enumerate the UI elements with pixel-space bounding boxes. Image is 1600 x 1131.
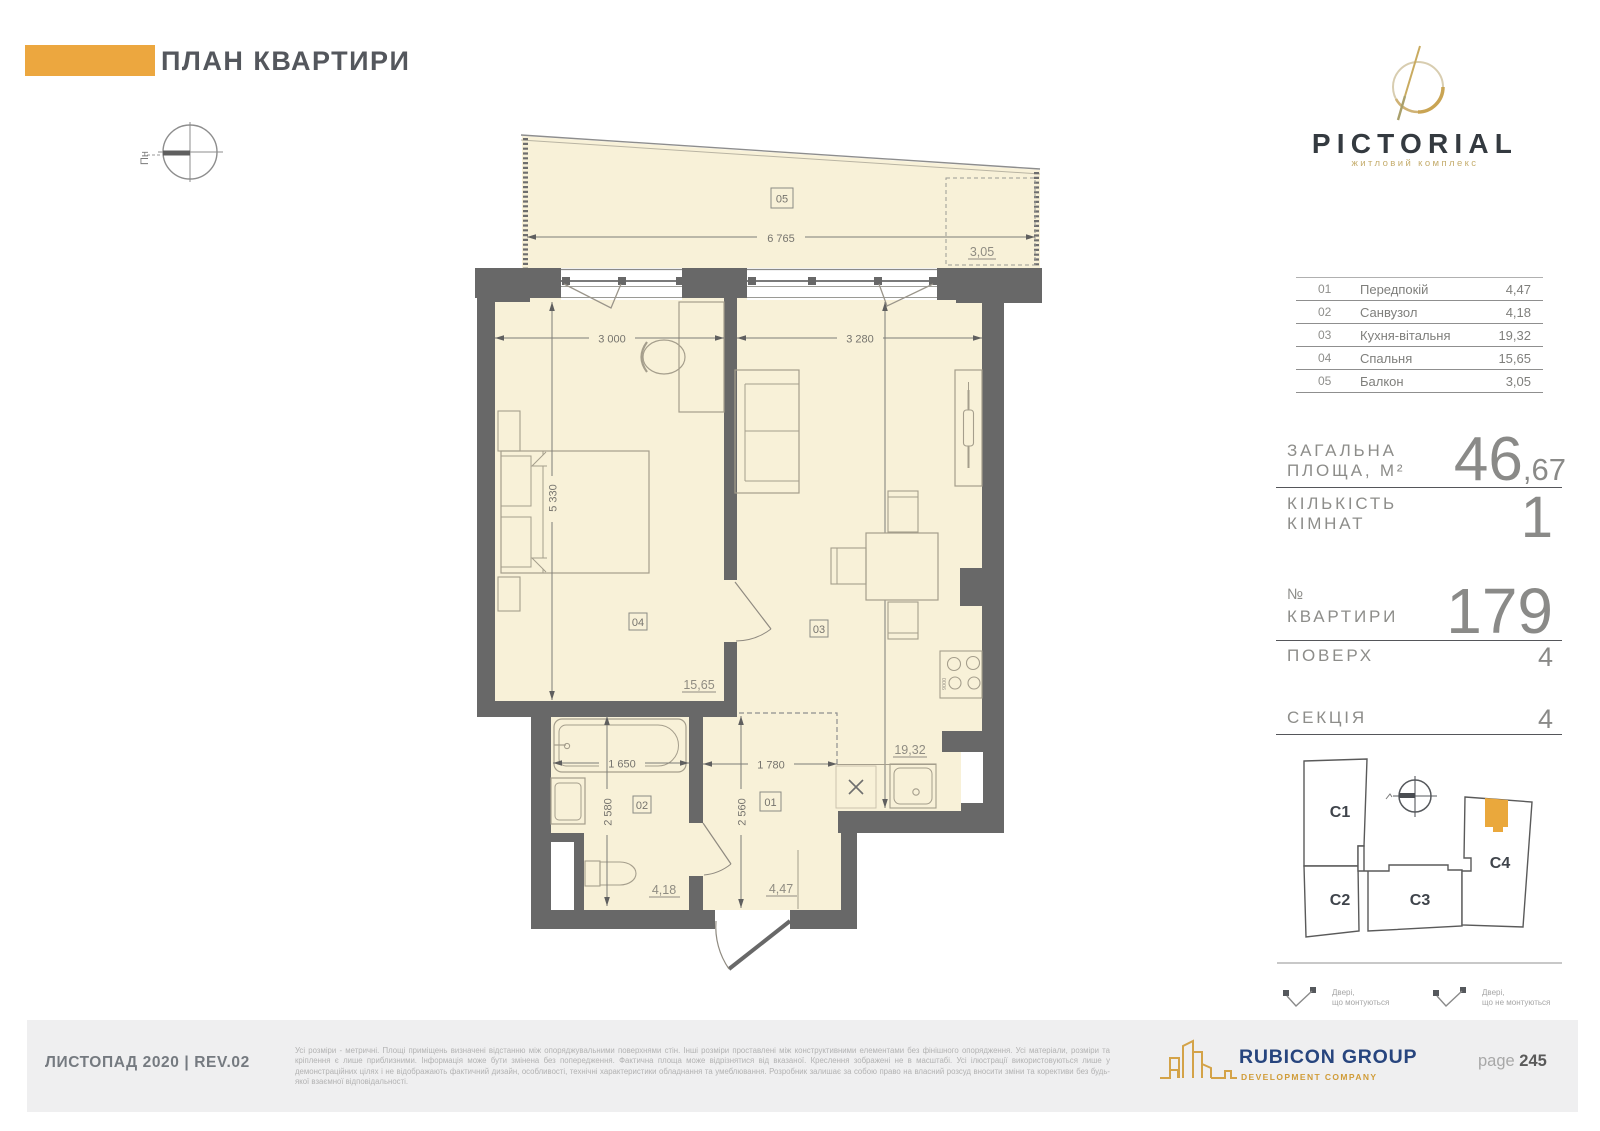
svg-text:05: 05 [776,194,788,206]
svg-text:03: 03 [813,624,825,636]
svg-text:9000: 9000 [942,678,948,690]
svg-text:5 330: 5 330 [548,484,560,512]
svg-text:Двері,: Двері, [1332,988,1354,997]
svg-text:C3: C3 [1410,892,1431,909]
svg-text:15,65: 15,65 [683,678,714,692]
svg-text:3 000: 3 000 [598,334,626,346]
svg-text:C2: C2 [1330,892,1351,909]
svg-text:6 765: 6 765 [767,233,795,245]
svg-text:04: 04 [632,617,644,629]
svg-text:2 560: 2 560 [737,798,749,826]
svg-text:1 780: 1 780 [757,760,785,772]
svg-text:02: 02 [636,800,648,812]
svg-text:01: 01 [764,797,776,809]
svg-text:Двері,: Двері, [1482,988,1504,997]
svg-text:4,47: 4,47 [769,882,793,896]
svg-text:3,05: 3,05 [970,245,994,259]
svg-text:що не монтуються: що не монтуються [1482,998,1550,1007]
svg-text:C1: C1 [1330,804,1351,821]
svg-text:Пн: Пн [139,151,151,165]
svg-text:2 580: 2 580 [603,798,615,826]
svg-text:19,32: 19,32 [894,743,925,757]
svg-text:3 280: 3 280 [846,334,874,346]
svg-text:4,18: 4,18 [652,883,676,897]
svg-text:1 650: 1 650 [608,759,636,771]
svg-text:що монтуються: що монтуються [1332,998,1389,1007]
svg-text:C4: C4 [1490,855,1511,872]
